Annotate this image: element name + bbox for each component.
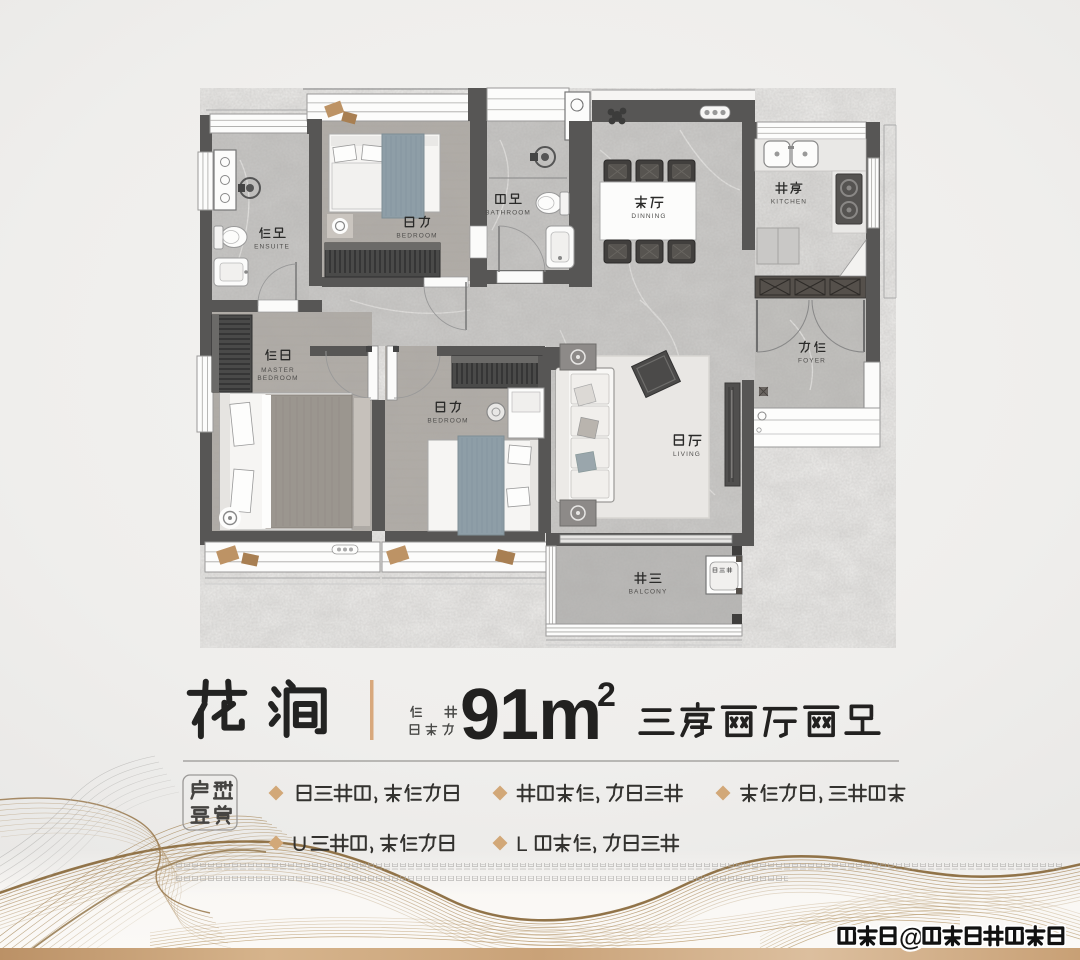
svg-text:BEDROOM: BEDROOM — [427, 418, 468, 425]
svg-text:L: L — [516, 833, 528, 856]
svg-text:91m: 91m — [460, 675, 601, 755]
svg-text:FOYER: FOYER — [798, 358, 826, 365]
svg-text:@: @ — [899, 924, 923, 952]
svg-text:2: 2 — [597, 676, 616, 714]
svg-text:BEDROOM: BEDROOM — [396, 233, 437, 240]
svg-text:ENSUITE: ENSUITE — [254, 244, 290, 251]
svg-text:BATHROOM: BATHROOM — [485, 210, 531, 217]
svg-text:BEDROOM: BEDROOM — [257, 375, 298, 382]
svg-text:U: U — [292, 833, 307, 856]
svg-text:MASTER: MASTER — [261, 367, 295, 374]
svg-text:DINNING: DINNING — [631, 213, 666, 220]
svg-text:LIVING: LIVING — [673, 451, 701, 458]
svg-text:KITCHEN: KITCHEN — [771, 199, 807, 206]
svg-text:BALCONY: BALCONY — [629, 589, 668, 596]
